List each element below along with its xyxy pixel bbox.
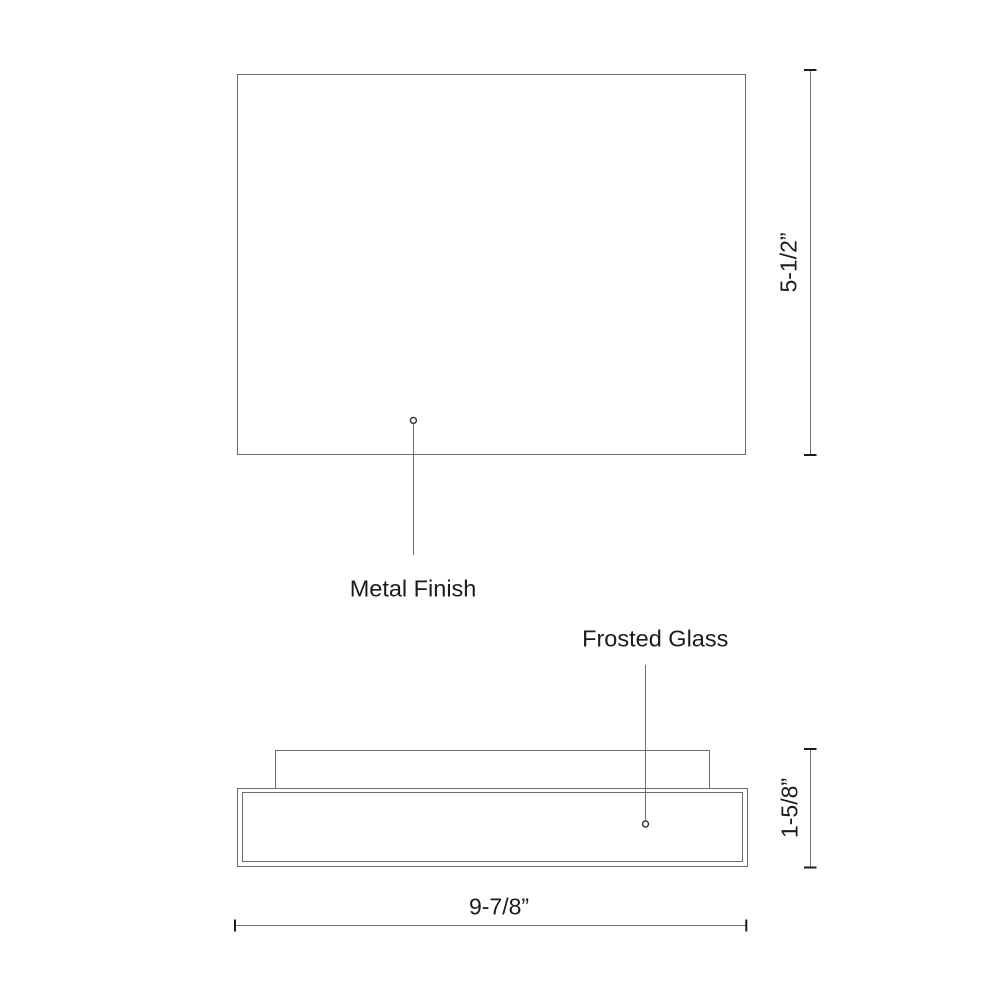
svg-text:Frosted Glass: Frosted Glass [582,625,728,651]
svg-text:Metal Finish: Metal Finish [350,575,477,601]
svg-text:9-7/8”: 9-7/8” [469,894,529,920]
svg-text:5-1/2”: 5-1/2” [776,232,802,292]
svg-text:1-5/8”: 1-5/8” [777,778,803,838]
